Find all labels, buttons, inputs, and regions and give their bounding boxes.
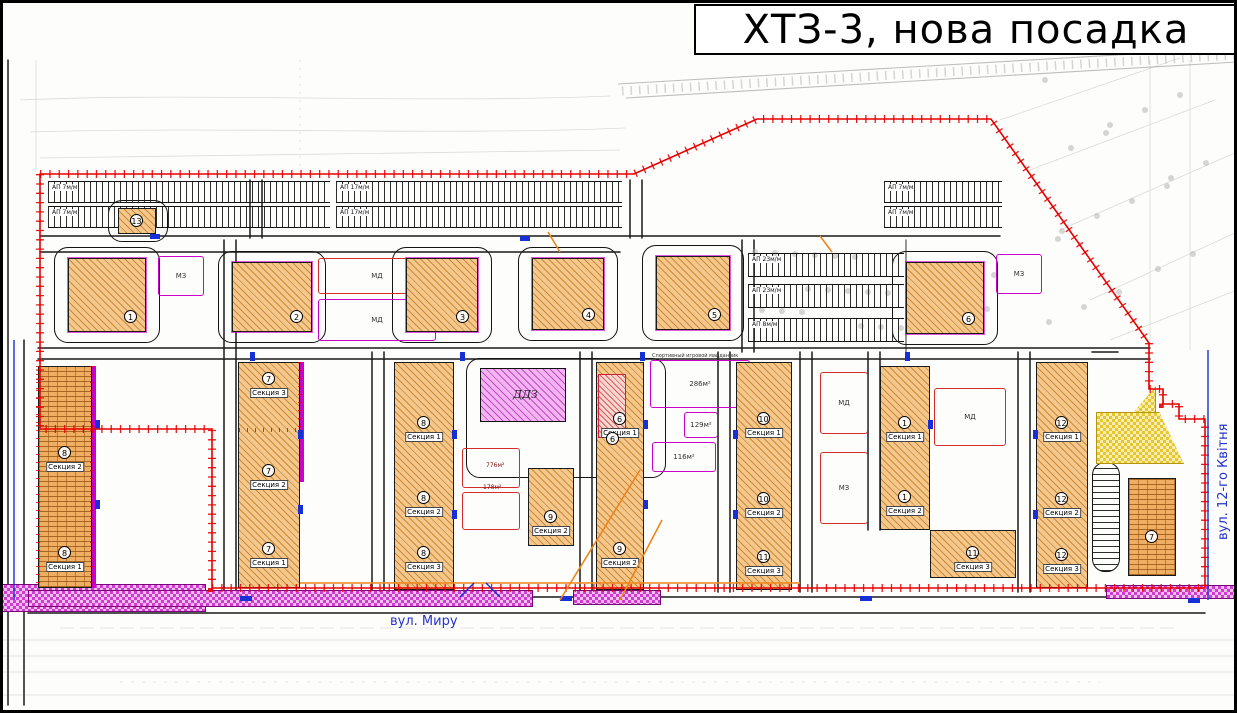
boundary-layer [0,0,1237,713]
street-label-12-kvitnya: вул. 12-го Квітня [1216,424,1231,540]
drawing-title-box: ХТЗ-3, нова посадка [694,4,1237,55]
site-boundary-line [40,119,1205,588]
site-plan-canvas: ХТЗ-3, нова посадка вул. Миру вул. 12-го… [0,0,1237,713]
street-label-myru: вул. Миру [390,614,458,629]
street-edge-blue [14,340,1208,600]
utility-line-orange [300,232,832,600]
page-title: ХТЗ-3, нова посадка [743,8,1190,52]
